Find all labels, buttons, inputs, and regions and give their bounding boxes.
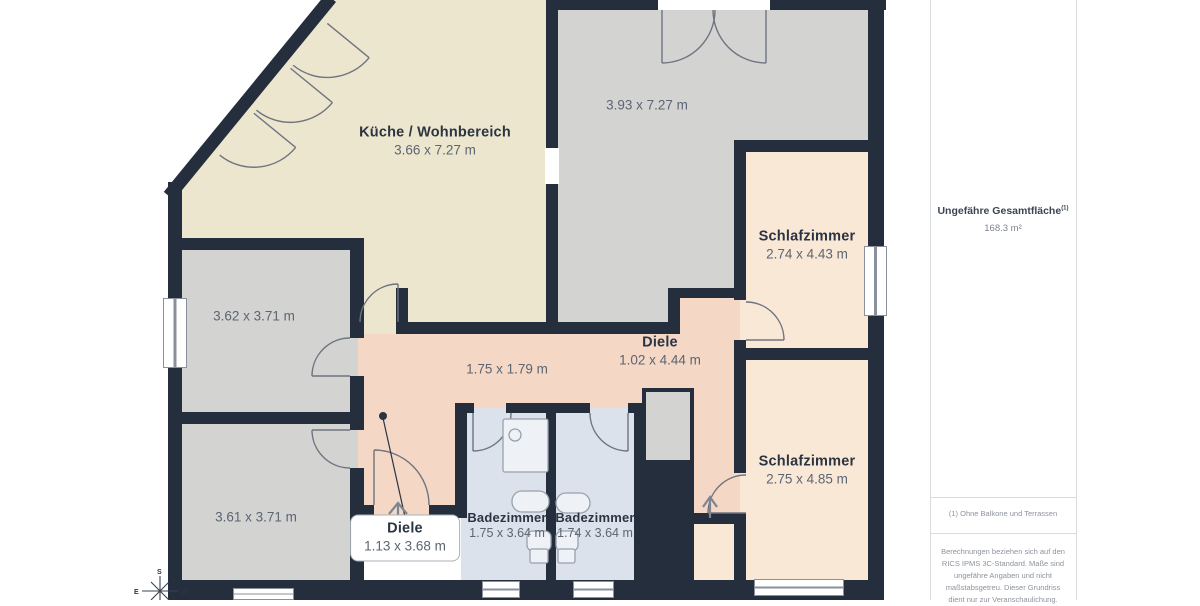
wall-segment bbox=[546, 413, 556, 585]
wall-segment bbox=[668, 288, 740, 298]
compass-south-label: S bbox=[157, 569, 162, 576]
wall-segment bbox=[455, 403, 474, 413]
wall-segment bbox=[546, 0, 558, 148]
wall-block bbox=[642, 460, 694, 585]
room-label-left-1: 3.62 x 3.71 m bbox=[213, 309, 295, 324]
floor-left-room-2 bbox=[176, 418, 358, 585]
room-label-schlafzimmer-2: Schlafzimmer 2.75 x 4.85 m bbox=[759, 454, 856, 487]
panel-divider bbox=[930, 533, 1077, 534]
wall-segment bbox=[734, 348, 880, 360]
panel-border-right bbox=[1076, 0, 1077, 600]
total-area-value: 168.3 m² bbox=[928, 223, 1078, 234]
door-opening bbox=[545, 148, 559, 184]
wall-segment bbox=[350, 376, 364, 430]
room-label-diele-entry: Diele 1.13 x 3.68 m bbox=[350, 515, 460, 562]
wall-segment bbox=[546, 0, 658, 10]
floor-badezimmer-1 bbox=[461, 408, 552, 585]
wall-segment bbox=[734, 140, 746, 300]
panel-border-left bbox=[930, 0, 931, 600]
wall-segment bbox=[168, 412, 364, 424]
room-label-schlafzimmer-1: Schlafzimmer 2.74 x 4.43 m bbox=[759, 229, 856, 262]
floor-left-room-1 bbox=[176, 244, 358, 418]
shaft bbox=[642, 388, 694, 464]
compass-east-label: E bbox=[134, 589, 139, 596]
wall-segment bbox=[168, 238, 364, 250]
wall-segment bbox=[506, 403, 590, 413]
room-label-left-2: 3.61 x 3.71 m bbox=[215, 510, 297, 525]
footnote-marker: (1) bbox=[1061, 206, 1068, 212]
room-label-top-right: 3.93 x 7.27 m bbox=[606, 98, 688, 113]
window bbox=[573, 581, 614, 598]
room-label-kueche: Küche / Wohnbereich 3.66 x 7.27 m bbox=[359, 125, 511, 158]
wall-segment bbox=[734, 140, 880, 152]
room-label-badezimmer-1: Badezimmer 1.75 x 3.64 m bbox=[467, 510, 546, 540]
floorplan-page: { "colors": { "wall": "#242e3d", "cream"… bbox=[0, 0, 1200, 600]
window bbox=[163, 298, 187, 368]
wall-segment bbox=[396, 322, 676, 334]
window bbox=[233, 588, 294, 600]
room-label-diele: Diele 1.02 x 4.44 m bbox=[619, 335, 701, 368]
floor-badezimmer-2 bbox=[552, 408, 646, 585]
window bbox=[482, 581, 520, 598]
disclaimer-text: Berechnungen beziehen sich auf den RICS … bbox=[939, 546, 1067, 606]
window bbox=[864, 246, 887, 316]
room-label-badezimmer-2: Badezimmer 1.74 x 3.64 m bbox=[555, 510, 634, 540]
wall-segment bbox=[455, 413, 467, 518]
panel-divider bbox=[930, 497, 1077, 498]
wall-segment bbox=[350, 238, 364, 338]
double-door-opening bbox=[658, 0, 770, 10]
footnote-text: (1) Ohne Balkone und Terrassen bbox=[933, 509, 1073, 518]
total-area-title: Ungefähre Gesamtfläche(1) bbox=[928, 205, 1078, 217]
window bbox=[754, 579, 844, 596]
room-label-flur: 1.75 x 1.79 m bbox=[466, 362, 548, 377]
floor-diele-entry bbox=[358, 408, 461, 518]
wall-segment bbox=[396, 288, 408, 334]
wall-segment bbox=[546, 184, 558, 334]
